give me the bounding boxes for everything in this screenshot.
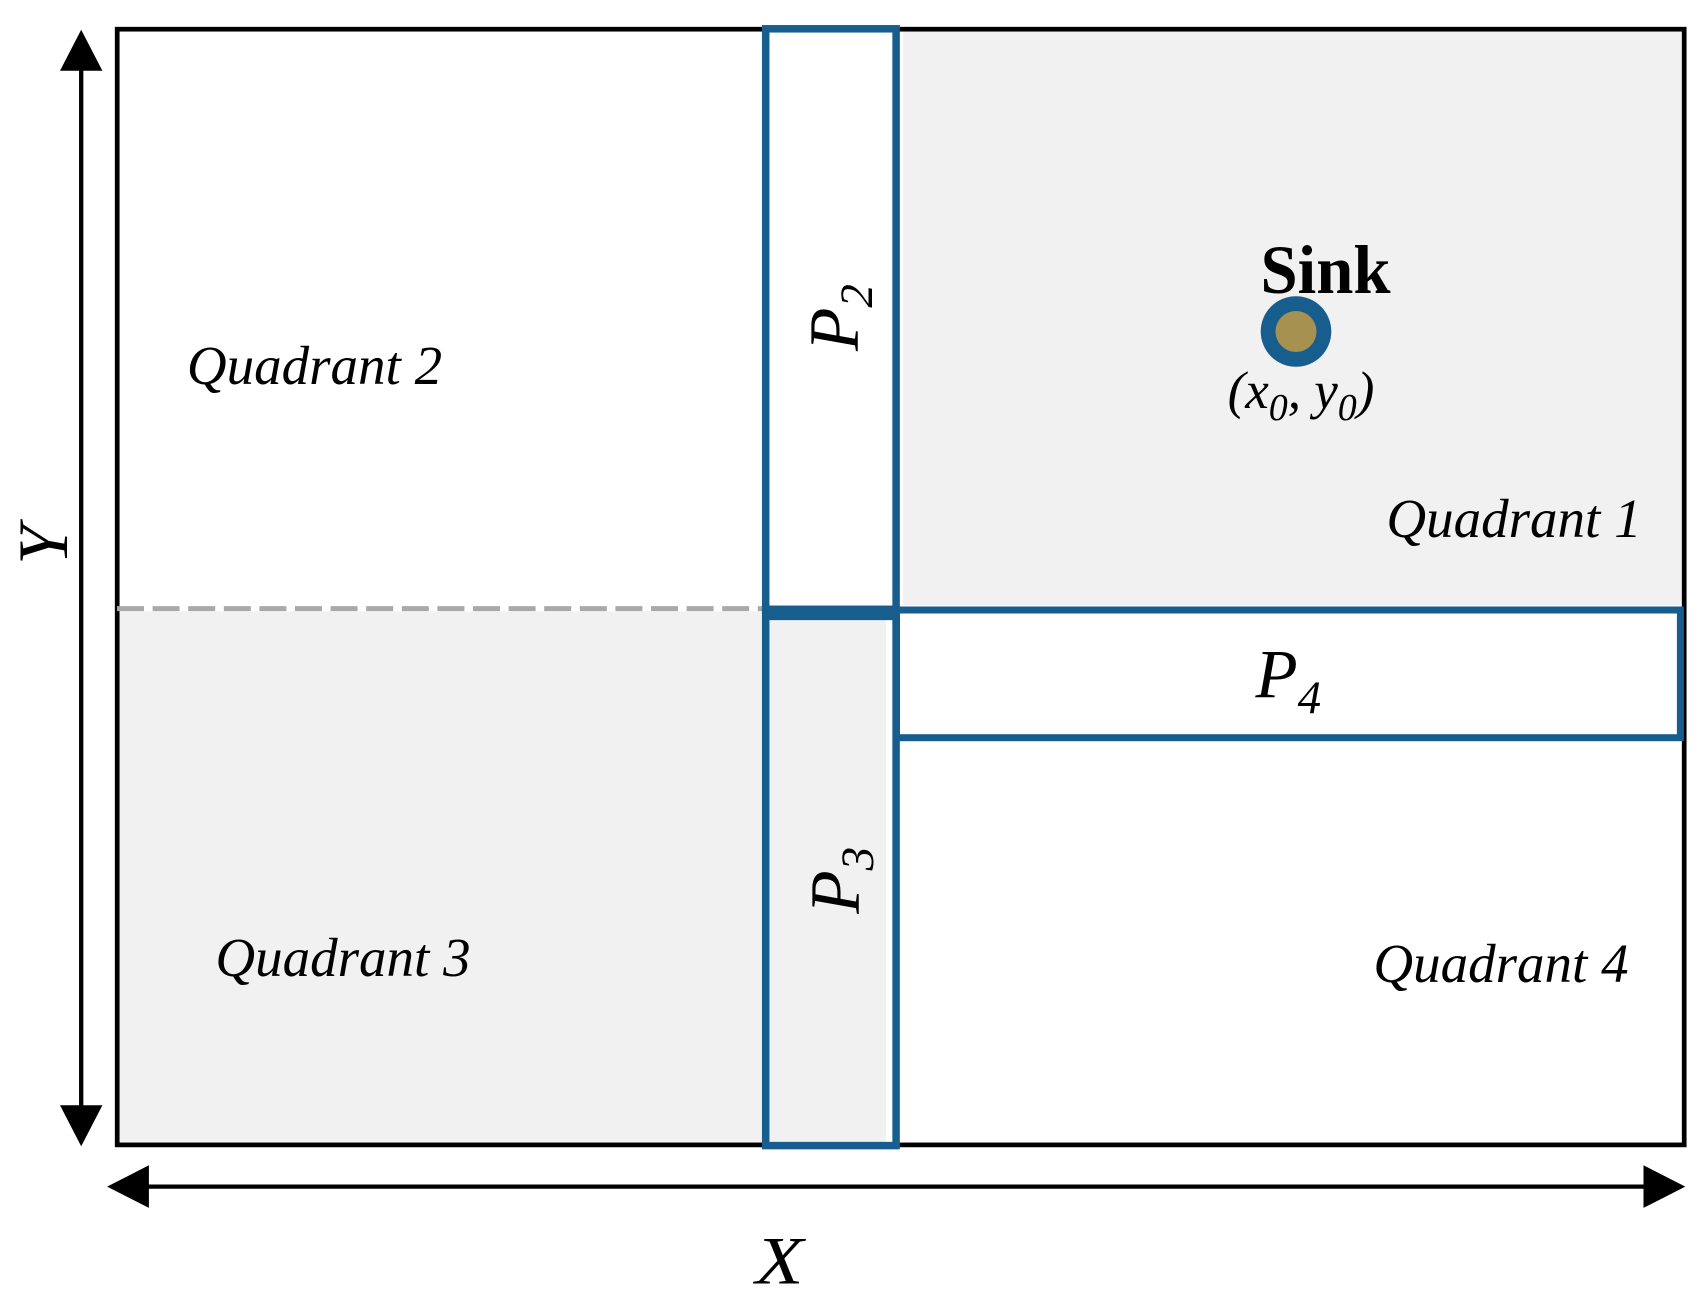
svg-text:Quadrant 3: Quadrant 3 [215, 927, 470, 988]
svg-text:X: X [752, 1223, 806, 1299]
svg-text:Sink: Sink [1261, 232, 1392, 308]
svg-text:Quadrant 2: Quadrant 2 [187, 335, 442, 396]
svg-text:Quadrant 1: Quadrant 1 [1386, 488, 1641, 549]
svg-text:Quadrant 4: Quadrant 4 [1373, 933, 1628, 994]
svg-text:Y: Y [5, 519, 83, 565]
